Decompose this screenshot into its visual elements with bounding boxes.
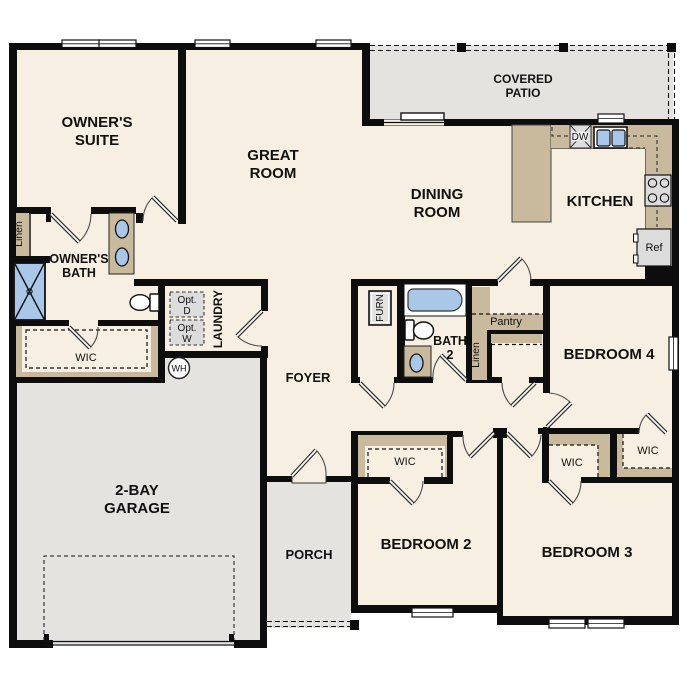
svg-text:W: W [182, 334, 192, 345]
svg-text:BATH: BATH [62, 266, 96, 280]
svg-text:GARAGE: GARAGE [104, 500, 170, 517]
svg-text:COVERED: COVERED [493, 72, 553, 86]
svg-text:KITCHEN: KITCHEN [567, 193, 634, 210]
svg-text:ROOM: ROOM [250, 165, 297, 182]
svg-text:Linen: Linen [13, 221, 25, 247]
svg-text:OWNER'S: OWNER'S [61, 114, 132, 131]
svg-text:Linen: Linen [470, 342, 482, 368]
svg-text:Pantry: Pantry [490, 316, 522, 328]
svg-text:FOYER: FOYER [286, 370, 331, 385]
svg-text:BEDROOM 4: BEDROOM 4 [564, 346, 656, 363]
svg-text:BEDROOM 2: BEDROOM 2 [381, 536, 472, 553]
svg-text:ROOM: ROOM [414, 204, 461, 221]
svg-text:Ref: Ref [645, 242, 663, 254]
svg-text:DINING: DINING [411, 186, 464, 203]
svg-text:PATIO: PATIO [506, 86, 541, 100]
svg-text:Opt.: Opt. [178, 323, 197, 334]
svg-text:OWNER'S: OWNER'S [49, 252, 108, 266]
svg-text:GREAT: GREAT [247, 147, 298, 164]
svg-text:DW: DW [572, 132, 589, 143]
svg-text:LAUNDRY: LAUNDRY [211, 290, 225, 348]
svg-text:FURN: FURN [375, 294, 386, 322]
svg-text:BATH: BATH [433, 334, 467, 348]
svg-text:WIC: WIC [75, 352, 96, 364]
svg-text:WH: WH [172, 364, 187, 374]
svg-text:2: 2 [447, 348, 454, 362]
svg-text:SUITE: SUITE [75, 132, 119, 149]
svg-text:Opt.: Opt. [178, 295, 197, 306]
svg-text:WIC: WIC [394, 456, 415, 468]
svg-text:WIC: WIC [637, 445, 658, 457]
svg-text:D: D [183, 306, 190, 317]
svg-text:WIC: WIC [561, 457, 582, 469]
svg-text:PORCH: PORCH [286, 547, 333, 562]
svg-text:2-BAY: 2-BAY [115, 482, 159, 499]
svg-text:BEDROOM 3: BEDROOM 3 [542, 544, 633, 561]
